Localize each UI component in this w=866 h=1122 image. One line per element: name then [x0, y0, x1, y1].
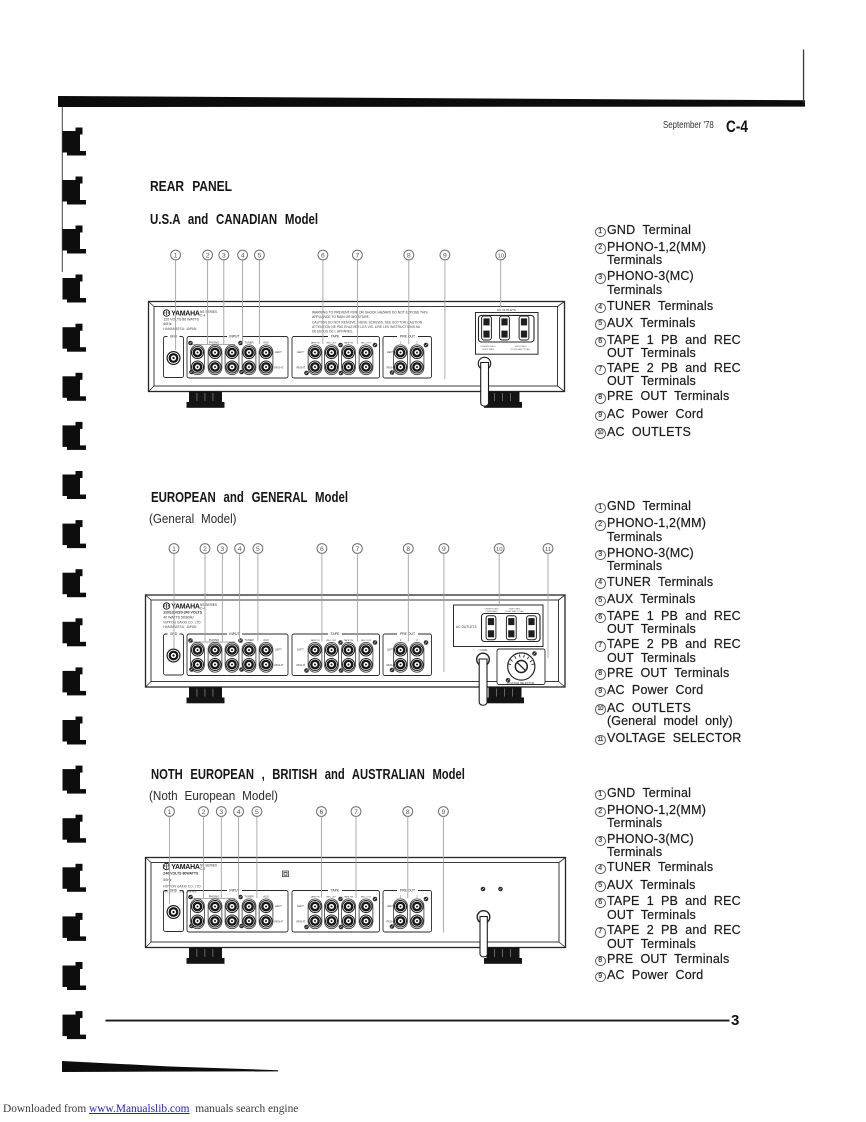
svg-text:(100W MAX TOTAL): (100W MAX TOTAL) — [505, 610, 524, 613]
svg-text:4: 4 — [237, 809, 241, 816]
svg-text:120 VOLTS 80 WATTS: 120 VOLTS 80 WATTS — [163, 318, 199, 322]
svg-text:1: 1 — [172, 546, 176, 553]
svg-text:AC OUTLETS: AC OUTLETS — [456, 625, 478, 629]
svg-text:3: 3 — [219, 809, 223, 816]
svg-text:9: 9 — [443, 252, 447, 259]
svg-text:11: 11 — [545, 547, 551, 553]
svg-text:2: 2 — [202, 809, 206, 816]
svg-text:2: 2 — [203, 546, 207, 553]
svg-text:110/120/220-240 VOLTS: 110/120/220-240 VOLTS — [163, 611, 202, 615]
svg-text:SWITCHED: SWITCHED — [515, 346, 527, 348]
svg-text:6: 6 — [320, 546, 324, 553]
svg-text:9: 9 — [442, 546, 446, 553]
svg-text:3: 3 — [222, 252, 226, 259]
svg-text:5: 5 — [256, 546, 260, 553]
svg-text:8: 8 — [406, 546, 410, 553]
svg-text:AC OUTLETS: AC OUTLETS — [497, 308, 516, 312]
svg-text:3: 3 — [220, 546, 224, 553]
svg-text:240 VOLTS 80WATTS: 240 VOLTS 80WATTS — [163, 872, 199, 876]
svg-text:UNSWITCHED: UNSWITCHED — [481, 346, 496, 348]
svg-text:(200W MAX): (200W MAX) — [486, 610, 498, 613]
svg-text:(100W MAX TOTAL): (100W MAX TOTAL) — [511, 348, 531, 351]
svg-text:WARNING TO PREVENT FIRE OR SHO: WARNING TO PREVENT FIRE OR SHOCK HAZARD … — [312, 311, 428, 315]
svg-text:DESSOUS DE L APPAREIL.: DESSOUS DE L APPAREIL. — [312, 330, 354, 334]
svg-text:9: 9 — [442, 809, 446, 816]
svg-text:NIPPON GAKKI CO. LTD.: NIPPON GAKKI CO. LTD. — [163, 621, 201, 625]
svg-text:8: 8 — [407, 252, 411, 259]
svg-text:5: 5 — [255, 809, 259, 816]
svg-text:1: 1 — [174, 252, 178, 259]
svg-text:CAUTION DO NOT REMOVE THES: CAUTION DO NOT REMOVE THESE SCREWS. SEE … — [312, 321, 423, 325]
svg-text:40 WATTS 50/60Hz: 40 WATTS 50/60Hz — [163, 616, 194, 620]
svg-text:VOLTAGE SELECTOR: VOLTAGE SELECTOR — [507, 681, 535, 685]
svg-text:5: 5 — [258, 252, 262, 259]
svg-text:2: 2 — [206, 252, 210, 259]
svg-text:4: 4 — [238, 546, 242, 553]
svg-text:7: 7 — [356, 252, 360, 259]
svg-text:10: 10 — [496, 547, 502, 553]
svg-text:6: 6 — [321, 252, 325, 259]
svg-text:60Hz: 60Hz — [163, 322, 171, 326]
svg-text:7: 7 — [356, 546, 360, 553]
svg-text:(200W MAX): (200W MAX) — [482, 348, 495, 351]
svg-text:7: 7 — [354, 809, 358, 816]
svg-text:1: 1 — [168, 809, 172, 816]
svg-text:4: 4 — [241, 252, 245, 259]
svg-text:APPLIANCE TO RAIN OR MOISTURE.: APPLIANCE TO RAIN OR MOISTURE. — [312, 315, 370, 319]
svg-text:ATTENTION NE PAS ENLEVER LES V: ATTENTION NE PAS ENLEVER LES VIS. LIRE L… — [312, 325, 421, 329]
svg-text:6: 6 — [320, 809, 324, 816]
svg-text:HAMAMATSU. JAPAN: HAMAMATSU. JAPAN — [163, 625, 197, 629]
svg-text:CORD: CORD — [480, 648, 488, 652]
svg-text:HAMAMATSU. JAPAN: HAMAMATSU. JAPAN — [163, 327, 197, 331]
svg-text:8: 8 — [406, 809, 410, 816]
svg-text:50Hz: 50Hz — [163, 878, 171, 882]
svg-text:10: 10 — [497, 253, 503, 259]
